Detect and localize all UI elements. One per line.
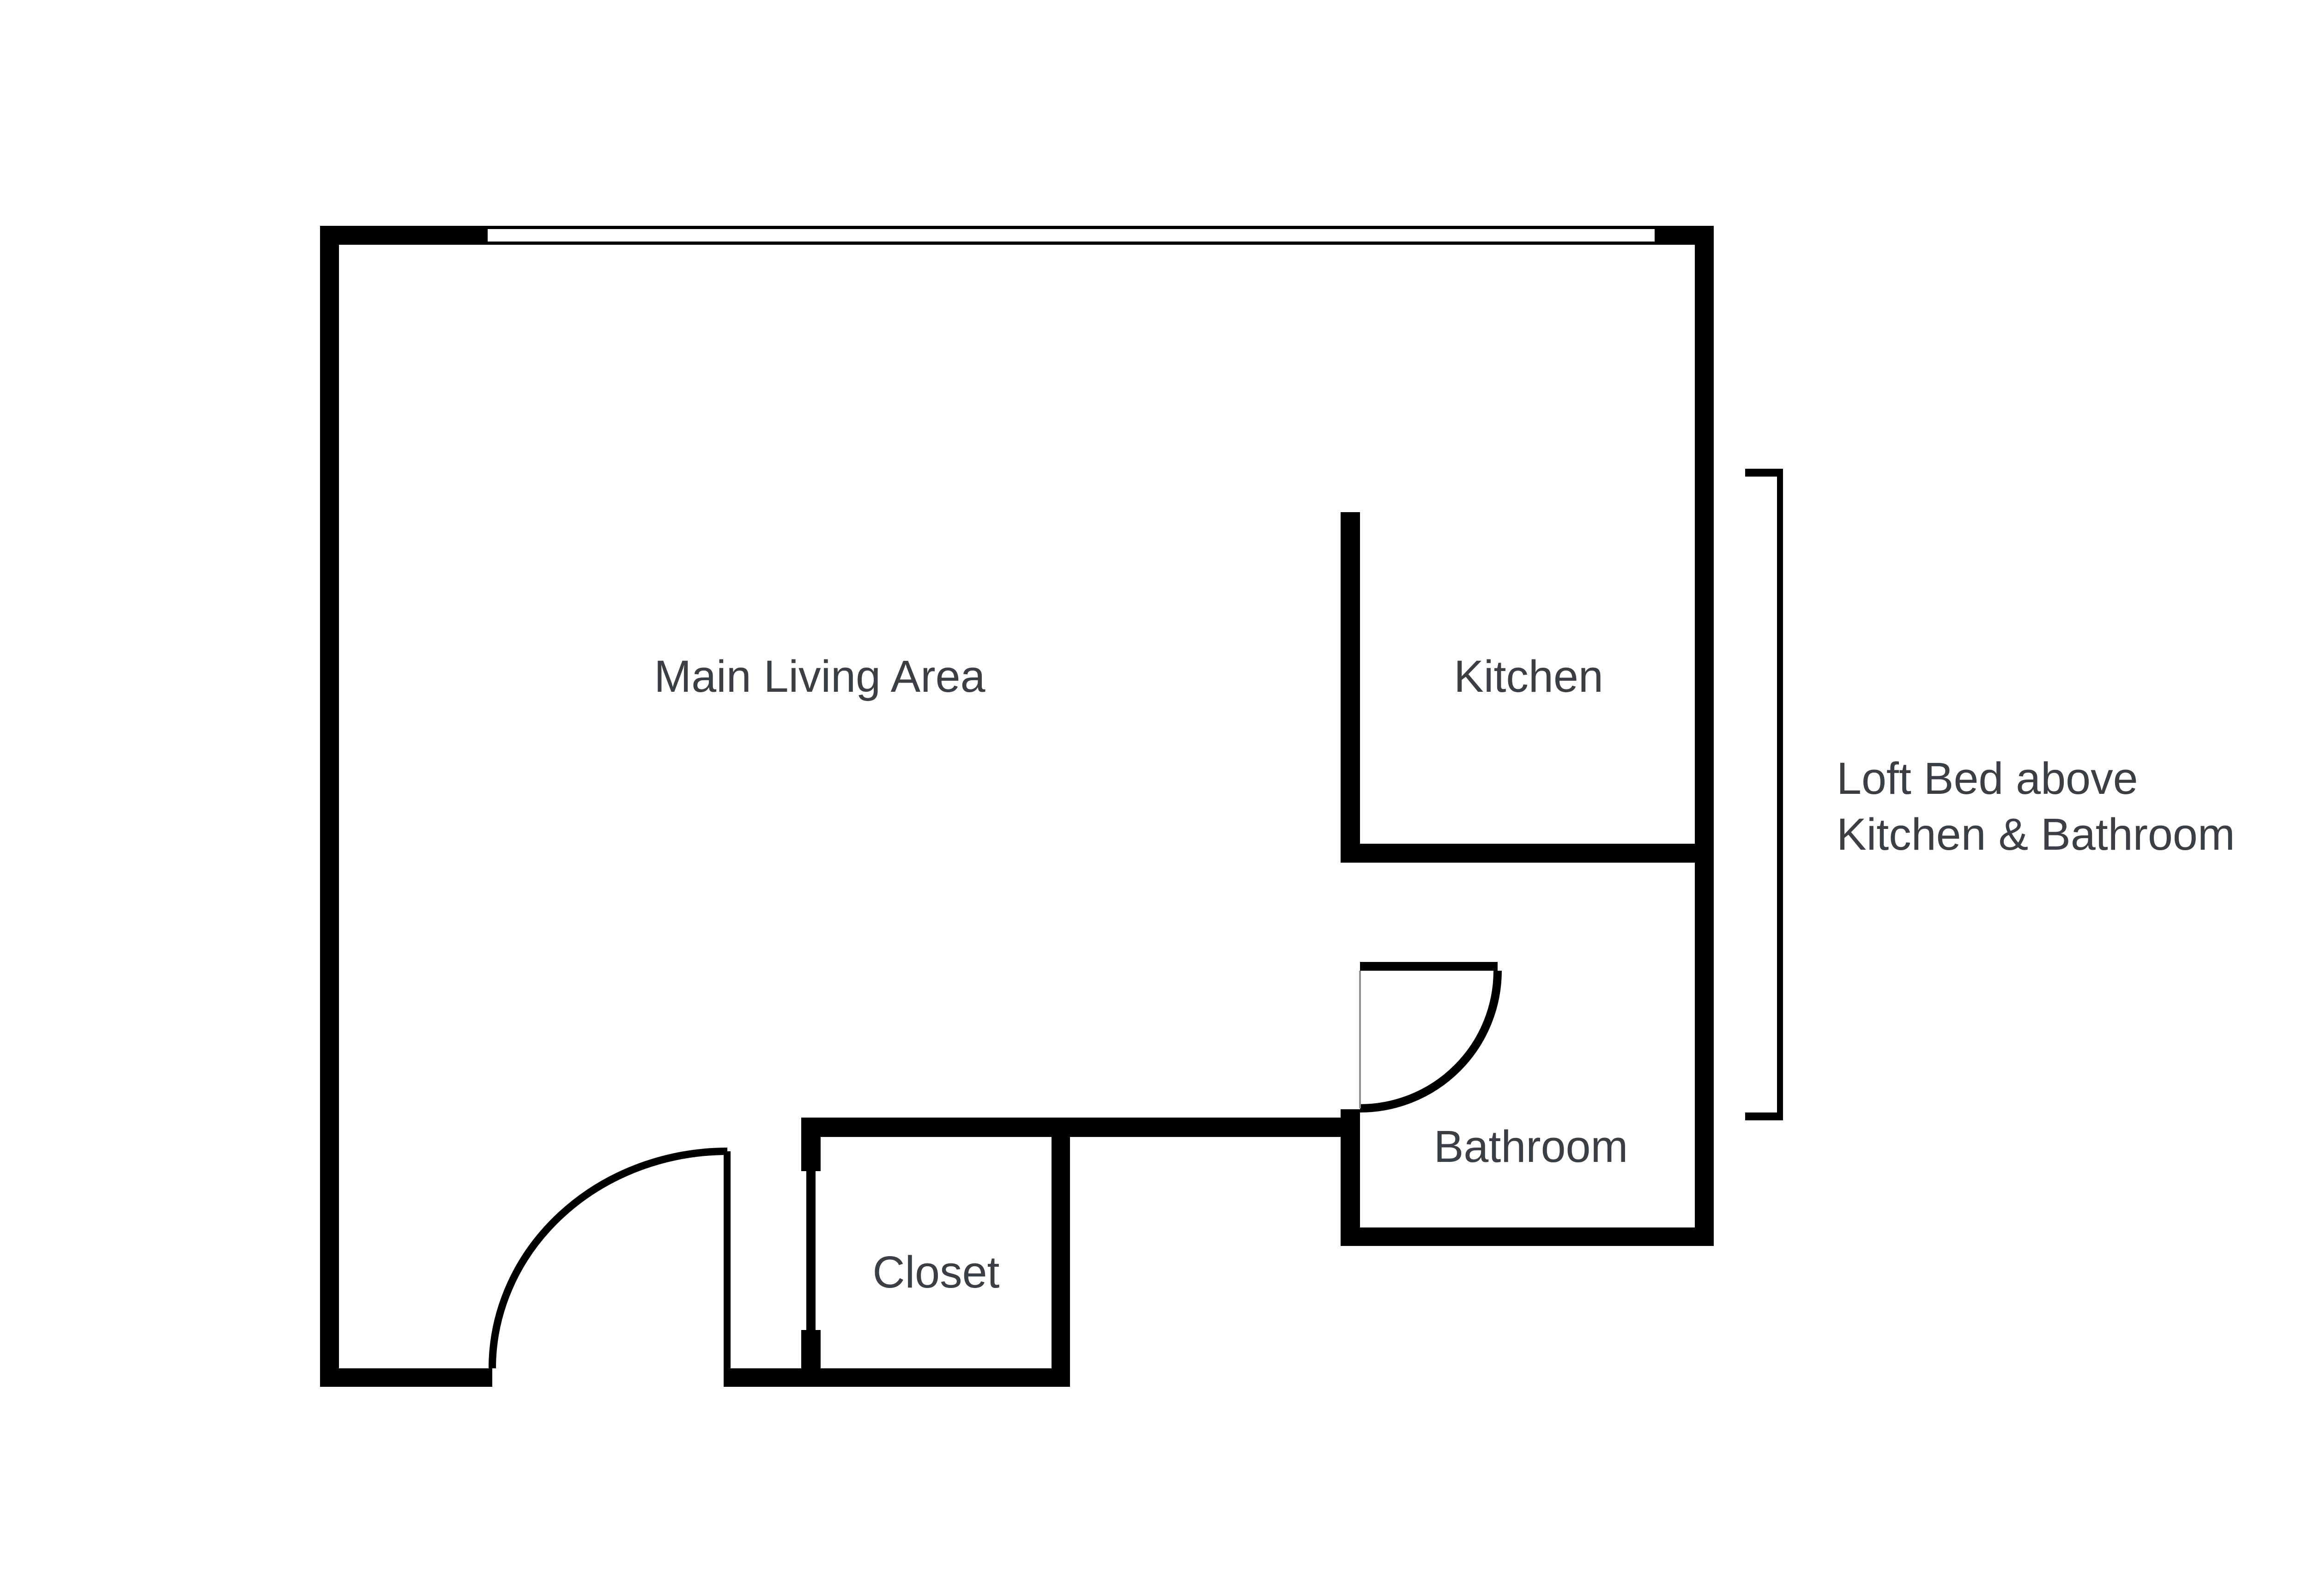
wall-closet-right: [1052, 1118, 1070, 1387]
room-label-bathroom: Bathroom: [1434, 1121, 1628, 1173]
bathroom-door-leaf-icon: [1360, 962, 1498, 971]
wall-kitchen-bathroom-divider: [1341, 844, 1695, 863]
entry-door-swing-arc-icon: [492, 1151, 727, 1368]
loft-bed-annotation: Loft Bed above Kitchen & Bathroom: [1837, 750, 2235, 862]
window-outer-line-icon: [488, 226, 1655, 229]
loft-bracket-bottom-tick-icon: [1745, 1112, 1783, 1120]
window-inner-line-icon: [488, 242, 1655, 245]
wall-bottom-right-segment: [724, 1368, 1070, 1387]
floor-plan-canvas: Main Living Area Kitchen Bathroom Closet…: [0, 0, 2309, 1596]
wall-right: [1695, 226, 1714, 1246]
bathroom-door-swing-arc-icon: [1360, 971, 1498, 1108]
wall-top-left-block: [320, 226, 488, 245]
walls-group: [320, 226, 1783, 1387]
room-label-main-living-area: Main Living Area: [654, 651, 985, 702]
wall-bathroom-left-below-door: [1341, 1109, 1360, 1246]
loft-bed-annotation-line2: Kitchen & Bathroom: [1837, 806, 2235, 862]
loft-bracket-line-icon: [1777, 469, 1783, 1120]
room-label-kitchen: Kitchen: [1454, 651, 1603, 702]
closet-door-line-icon: [806, 1171, 816, 1330]
room-label-closet: Closet: [873, 1246, 1000, 1298]
wall-closet-left-stub-top: [801, 1137, 821, 1171]
wall-bottom-left-segment: [320, 1368, 492, 1387]
loft-bracket-top-tick-icon: [1745, 469, 1783, 477]
entry-door-leaf-icon: [724, 1151, 731, 1387]
loft-bed-annotation-line1: Loft Bed above: [1837, 750, 2235, 806]
wall-closet-top-connector: [801, 1118, 1360, 1137]
wall-kitchen-divider-vertical: [1341, 512, 1360, 863]
wall-closet-left-stub-bottom: [801, 1330, 821, 1368]
wall-bathroom-bottom: [1341, 1227, 1714, 1246]
wall-left: [320, 226, 339, 1387]
